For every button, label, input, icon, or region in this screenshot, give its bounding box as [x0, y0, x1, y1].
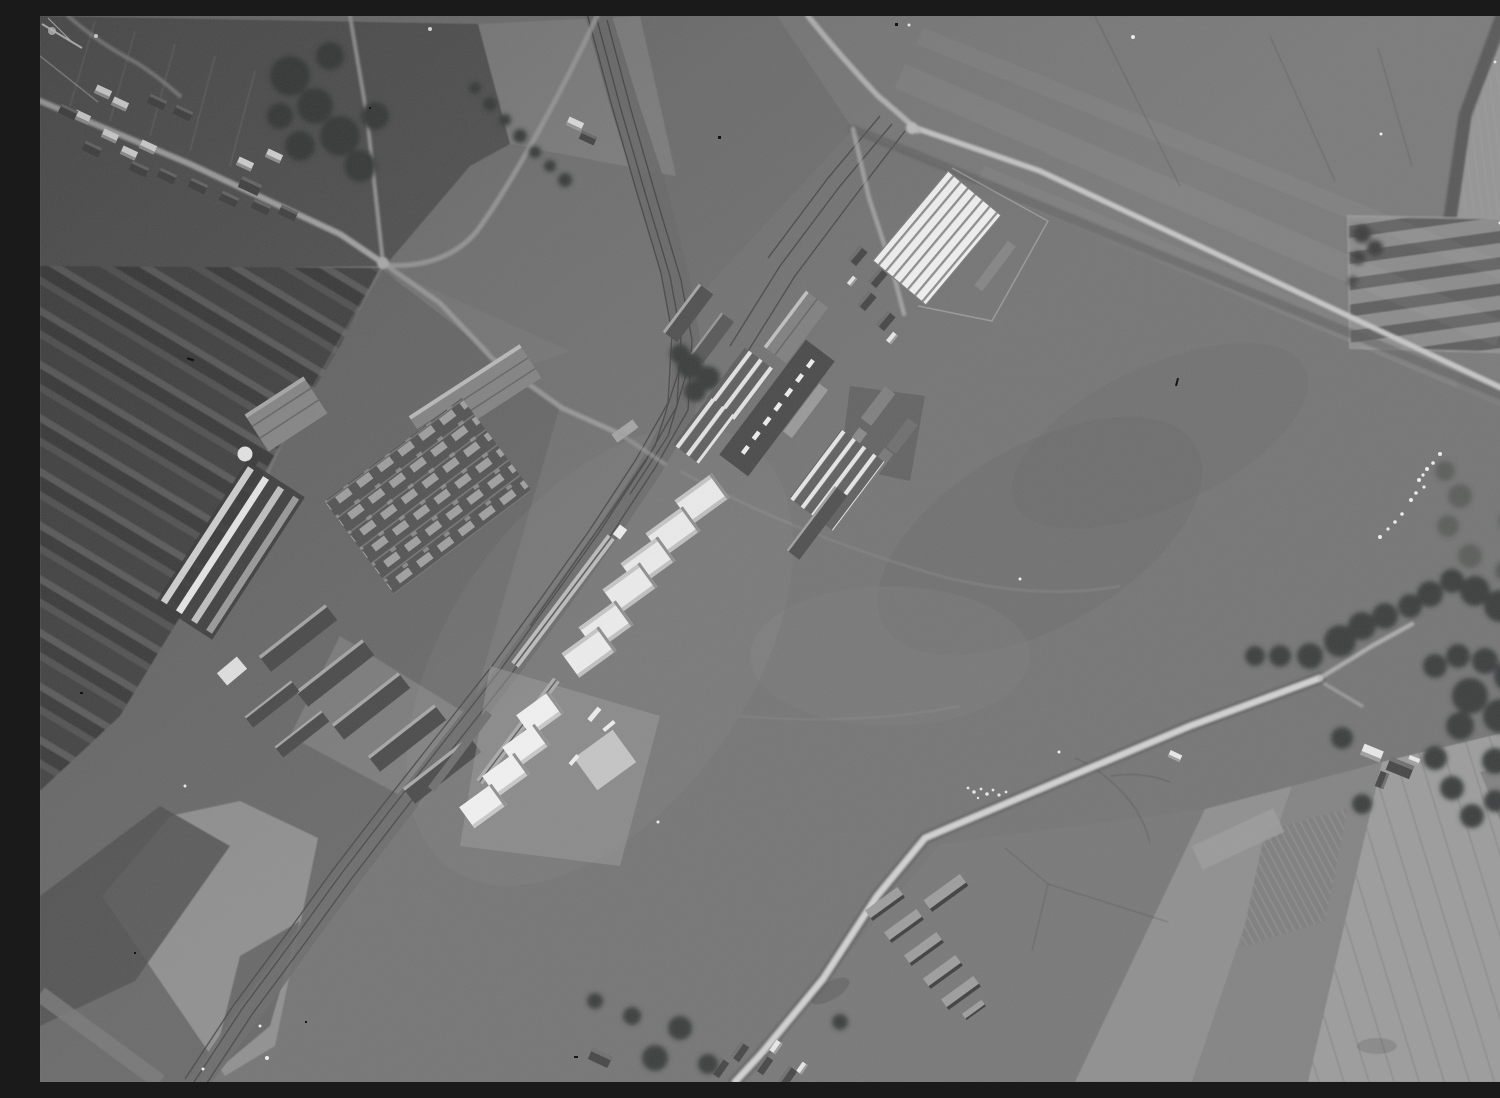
corner-shading — [40, 16, 1500, 1082]
aerial-photo-canvas — [40, 16, 1500, 1082]
aerial-photo: Monochrome vertical aerial photograph of… — [40, 16, 1500, 1082]
